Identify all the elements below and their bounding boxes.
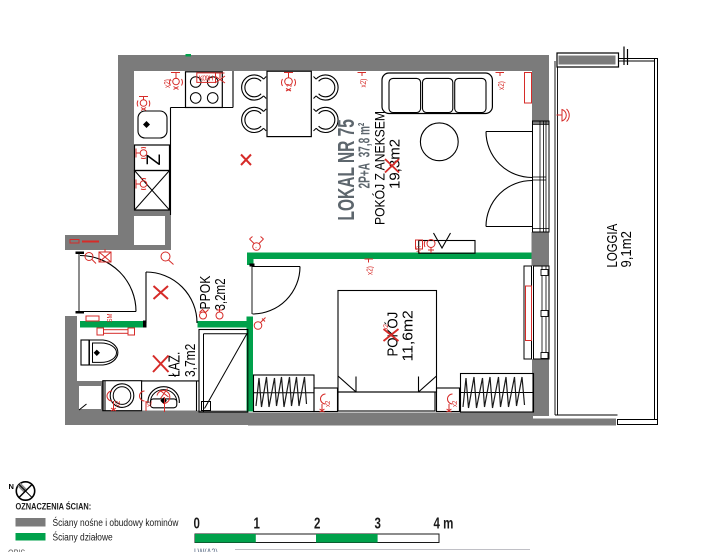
svg-text:N: N (9, 482, 14, 491)
svg-text:LW(A2): LW(A2) (194, 547, 218, 552)
svg-text:x2): x2) (358, 79, 368, 88)
svg-text:OPIS: OPIS (8, 548, 26, 552)
svg-text:SM: SM (106, 313, 114, 322)
svg-text:x2: x2 (114, 400, 122, 407)
svg-text:3: 3 (375, 514, 382, 532)
svg-text:Ściany nośne i obudowy kominów: Ściany nośne i obudowy kominów (53, 516, 179, 529)
svg-text:4 m: 4 m (434, 514, 454, 532)
svg-text:OZNACZENIA ŚCIAN:: OZNACZENIA ŚCIAN: (16, 499, 92, 511)
svg-text:11,6m2: 11,6m2 (400, 310, 417, 361)
svg-text:2: 2 (314, 514, 321, 532)
svg-text:3,2m2: 3,2m2 (212, 278, 229, 310)
svg-text:x2): x2) (496, 81, 506, 90)
svg-text:Z: Z (144, 154, 165, 166)
svg-text:Ściany działowe: Ściany działowe (53, 531, 113, 544)
svg-text:K09H: K09H (199, 76, 214, 83)
svg-text:x2): x2) (162, 79, 172, 88)
svg-text:x2: x2 (146, 400, 154, 407)
svg-text:POKÓJ Z ANEKSEM: POKÓJ Z ANEKSEM (372, 111, 388, 225)
svg-text:3,7m2: 3,7m2 (182, 344, 199, 377)
svg-text:x2): x2) (365, 266, 375, 275)
svg-text:0: 0 (194, 514, 201, 532)
svg-text:x2: x2 (451, 400, 459, 407)
svg-text:2P+A 37,8 m²: 2P+A 37,8 m² (355, 122, 373, 188)
svg-text:x2: x2 (324, 400, 332, 407)
svg-text:9,1m2: 9,1m2 (617, 231, 634, 268)
svg-text:2: 2 (286, 83, 294, 87)
svg-text:x2: x2 (382, 324, 390, 330)
svg-text:1: 1 (254, 514, 261, 532)
